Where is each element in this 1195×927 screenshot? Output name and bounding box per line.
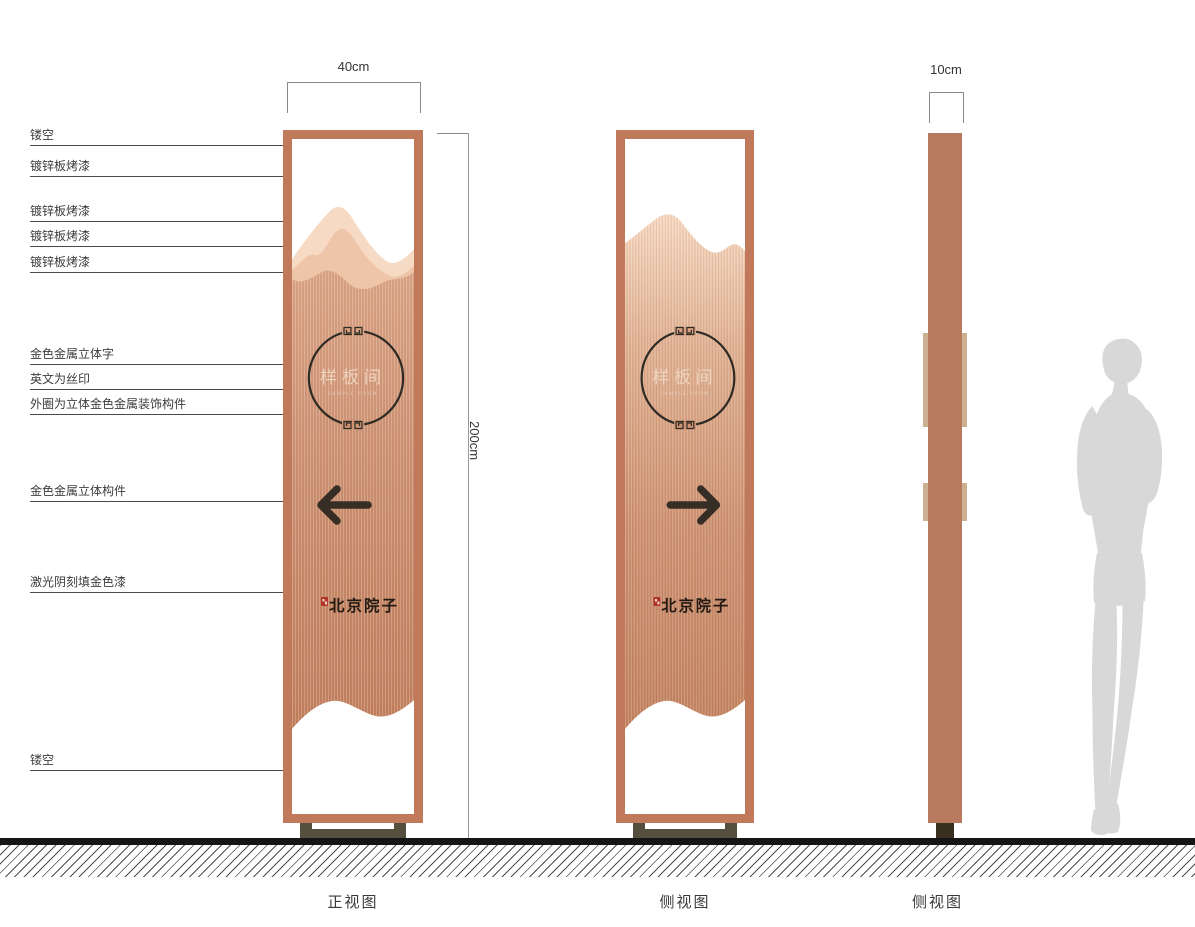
callout-hollow-top: 镂空 [30,128,307,146]
callout-outer-ring-gold-decor: 外圈为立体金色金属装饰构件 [30,397,313,415]
callout-text: 金色金属立体字 [30,347,114,361]
panel-body-brushed-texture [625,214,745,729]
base-stand-profile [936,823,954,838]
view-label-profile: 侧视图 [880,891,995,912]
brand-logo: 北京院子 [654,596,731,615]
base-stand-front [283,823,423,838]
profile-protrusion [923,483,928,521]
callout-text: 英文为丝印 [30,372,90,386]
callout-galvanized-paint-3: 镀锌板烤漆 [30,229,292,247]
sign-name-text: 样板间 [320,368,386,388]
callout-text: 镂空 [30,128,54,142]
profile-protrusion [962,333,967,427]
side-view-panel: 样板间 SAMPLE ROOM 北京院子 [616,130,754,823]
callout-text: 镀锌板烤漆 [30,204,90,218]
ground-line [0,838,1195,845]
callout-text: 镀锌板烤漆 [30,159,90,173]
dimension-depth-bracket [929,92,964,123]
sign-subtitle-en-text: SAMPLE ROOM [328,391,378,397]
meander-bottom-icon [674,421,696,430]
view-label-front: 正视图 [283,891,423,912]
meander-top-icon [674,327,696,336]
base-bar [633,829,737,838]
meander-bottom-icon [342,421,364,430]
callout-text: 金色金属立体构件 [30,484,126,498]
front-view-panel: 样板间 SAMPLE ROOM 北京院子 [283,130,423,823]
callout-text: 外圈为立体金色金属装饰构件 [30,397,186,411]
callout-text: 镂空 [30,753,54,767]
profile-protrusion [962,483,967,521]
base-bar [300,829,406,838]
view-label-side: 侧视图 [616,891,754,912]
base-stand-side [616,823,754,838]
dimension-height-label: 200cm [467,421,482,460]
side-profile-panel [928,133,962,823]
dimension-height-tick [437,133,468,134]
brand-logo-text: 北京院子 [661,596,730,615]
callout-text: 镀锌板烤漆 [30,255,90,269]
side-panel-graphic: 样板间 SAMPLE ROOM 北京院子 [625,139,745,814]
callout-galvanized-paint-4: 镀锌板烤漆 [30,255,289,273]
panel-body-brushed-texture [292,271,414,729]
callout-text: 镀锌板烤漆 [30,229,90,243]
dimension-height-line [468,133,469,838]
dimension-depth-label: 10cm [920,62,972,77]
signage-design-sheet: 镂空 镀锌板烤漆 镀锌板烤漆 镀锌板烤漆 镀锌板烤漆 金色金属立体字 英文为丝印… [0,0,1195,927]
callout-galvanized-paint-1: 镀锌板烤漆 [30,159,283,177]
callout-hollow-bottom: 镂空 [30,753,302,771]
meander-top-icon [342,327,364,336]
dimension-width-label: 40cm [287,59,420,74]
callout-text: 激光阴刻填金色漆 [30,575,126,589]
dimension-width-bracket [287,82,421,113]
human-silhouette [1040,337,1190,838]
front-panel-graphic: 样板间 SAMPLE ROOM 北京院子 [292,139,414,814]
callout-galvanized-paint-2: 镀锌板烤漆 [30,204,323,222]
brand-logo-text: 北京院子 [329,596,399,615]
ground-hatch [0,845,1195,877]
sign-name-text: 样板间 [653,367,718,387]
brand-logo: 北京院子 [321,596,399,615]
sign-subtitle-en-text: SAMPLE ROOM [660,391,709,397]
profile-protrusion [923,333,928,427]
